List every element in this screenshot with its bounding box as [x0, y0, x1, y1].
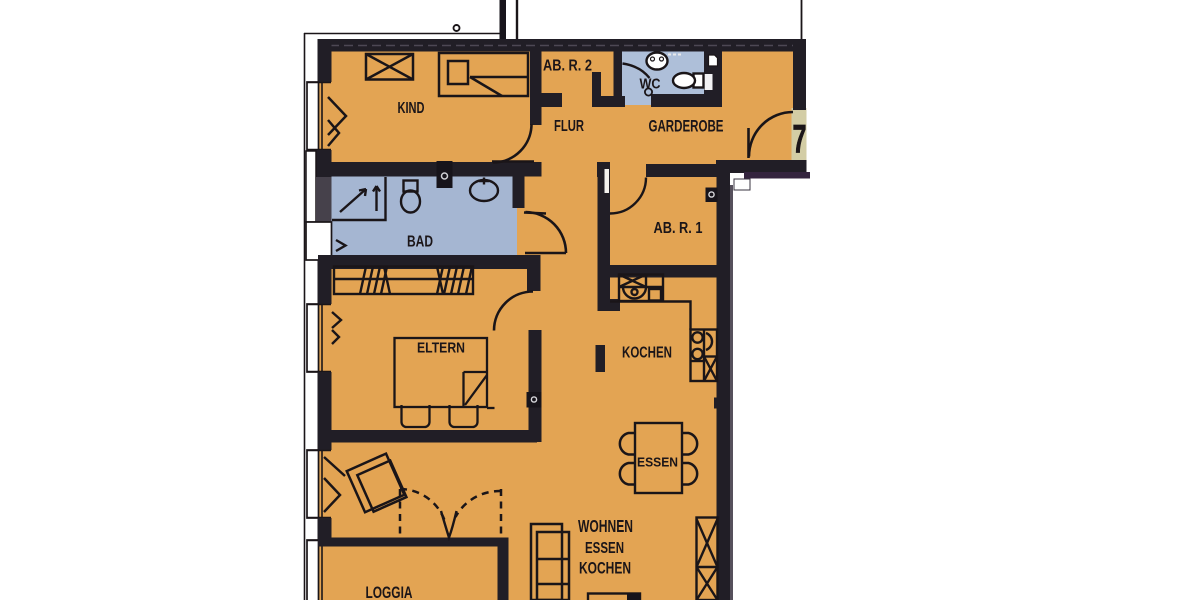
- svg-text:KIND: KIND: [398, 100, 425, 117]
- svg-text:7: 7: [793, 118, 807, 162]
- svg-text:KOCHEN: KOCHEN: [579, 559, 631, 578]
- svg-text:ELTERN: ELTERN: [417, 341, 465, 357]
- svg-text:FLUR: FLUR: [554, 118, 584, 135]
- svg-text:ESSEN: ESSEN: [637, 455, 678, 470]
- svg-text:WOHNEN: WOHNEN: [578, 516, 633, 536]
- svg-text:BAD: BAD: [407, 234, 433, 251]
- svg-text:ESSEN: ESSEN: [585, 540, 624, 557]
- svg-text:AB. R. 2: AB. R. 2: [543, 58, 592, 75]
- svg-text:WC: WC: [640, 76, 661, 93]
- svg-text:KOCHEN: KOCHEN: [622, 345, 672, 362]
- svg-text:LOGGIA: LOGGIA: [366, 583, 413, 600]
- svg-text:AB. R. 1: AB. R. 1: [654, 220, 703, 237]
- svg-text:GARDEROBE: GARDEROBE: [649, 118, 724, 136]
